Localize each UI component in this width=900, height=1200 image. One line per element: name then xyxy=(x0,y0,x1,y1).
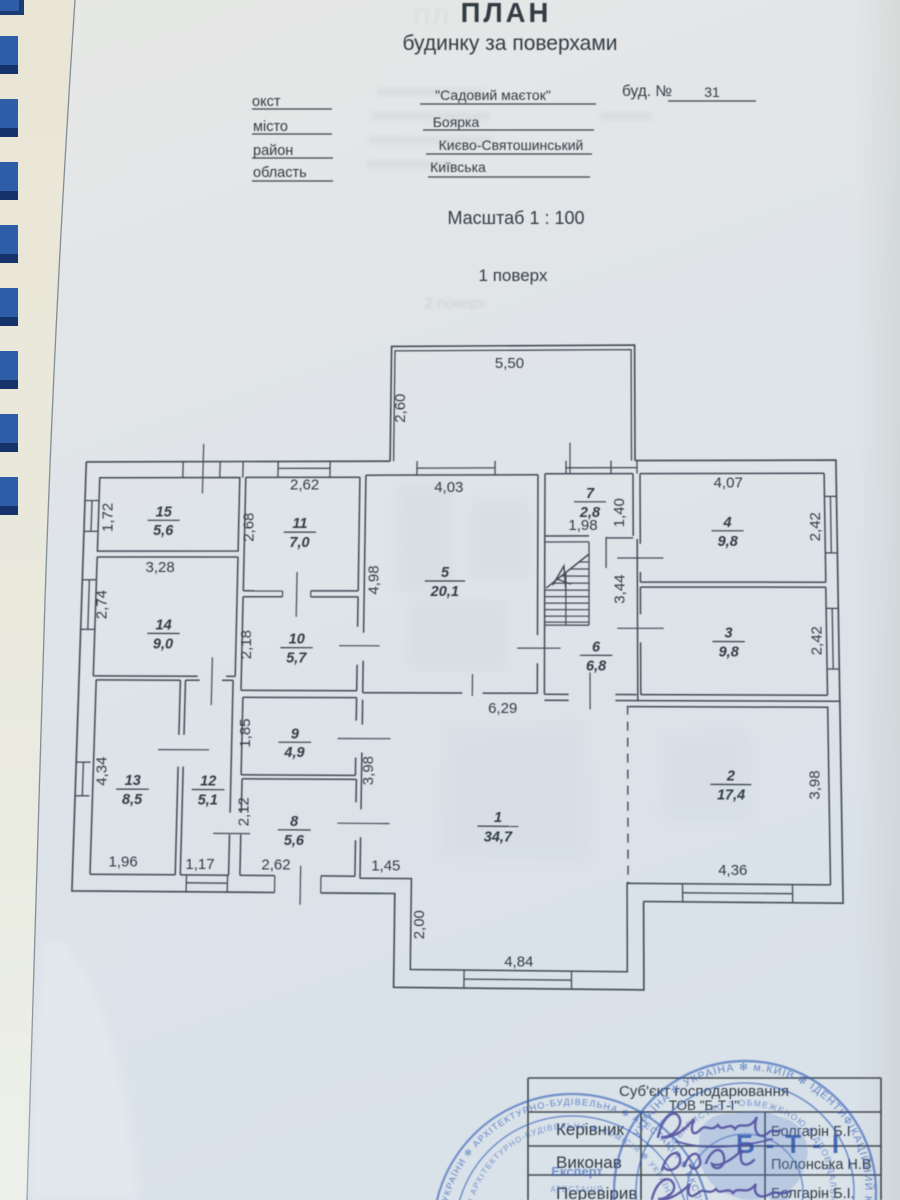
svg-text:8,5: 8,5 xyxy=(122,792,143,808)
svg-text:3,98: 3,98 xyxy=(807,770,824,799)
svg-text:2,62: 2,62 xyxy=(290,476,319,493)
svg-text:4,36: 4,36 xyxy=(718,862,747,879)
svg-text:3,44: 3,44 xyxy=(611,574,628,603)
svg-text:4,07: 4,07 xyxy=(714,475,743,492)
svg-text:4,9: 4,9 xyxy=(283,745,304,761)
svg-text:2,42: 2,42 xyxy=(807,512,824,541)
svg-text:7: 7 xyxy=(586,486,595,502)
svg-text:5,6: 5,6 xyxy=(284,833,305,849)
svg-text:13: 13 xyxy=(125,773,141,789)
svg-text:1,40: 1,40 xyxy=(611,498,628,527)
svg-text:3,28: 3,28 xyxy=(145,559,174,576)
svg-text:5: 5 xyxy=(441,565,450,581)
svg-text:9: 9 xyxy=(291,726,299,742)
svg-text:20,1: 20,1 xyxy=(430,584,459,600)
svg-text:4,84: 4,84 xyxy=(504,954,533,971)
svg-text:Експерт: Експерт xyxy=(551,1164,602,1179)
svg-text:Київська: Київська xyxy=(430,159,486,175)
svg-text:Києво-Святошинський: Києво-Святошинський xyxy=(439,137,584,153)
svg-text:6: 6 xyxy=(592,639,601,655)
svg-text:6,29: 6,29 xyxy=(488,700,517,717)
svg-text:АТЕСТАЦІЯ: АТЕСТАЦІЯ xyxy=(550,1185,603,1194)
svg-text:15: 15 xyxy=(156,504,173,520)
svg-text:2,00: 2,00 xyxy=(411,910,428,939)
svg-text:1,85: 1,85 xyxy=(237,718,254,747)
svg-text:1,72: 1,72 xyxy=(100,503,117,532)
svg-text:10: 10 xyxy=(289,632,305,648)
svg-text:1,96: 1,96 xyxy=(108,854,137,871)
svg-text:1: 1 xyxy=(494,810,502,826)
svg-text:область: область xyxy=(253,165,307,181)
svg-text:14: 14 xyxy=(156,618,172,634)
svg-text:1,45: 1,45 xyxy=(371,857,400,874)
svg-text:8: 8 xyxy=(290,814,299,830)
svg-text:3,98: 3,98 xyxy=(360,756,377,785)
svg-text:2,74: 2,74 xyxy=(94,590,111,619)
svg-text:2,68: 2,68 xyxy=(241,513,258,542)
svg-text:4: 4 xyxy=(722,515,731,531)
svg-text:окст: окст xyxy=(252,94,281,110)
svg-text:12: 12 xyxy=(200,774,216,790)
svg-text:1,17: 1,17 xyxy=(185,856,214,873)
svg-text:6,8: 6,8 xyxy=(586,658,607,674)
svg-text:2,18: 2,18 xyxy=(238,630,255,659)
svg-text:місто: місто xyxy=(253,119,288,135)
svg-text:9,0: 9,0 xyxy=(153,636,173,652)
svg-text:Масштаб 1 : 100: Масштаб 1 : 100 xyxy=(447,208,584,228)
svg-text:2,42: 2,42 xyxy=(809,626,826,655)
svg-text:17,4: 17,4 xyxy=(717,788,745,804)
svg-text:5,7: 5,7 xyxy=(286,651,307,667)
svg-text:7,0: 7,0 xyxy=(289,535,309,551)
svg-text:5,50: 5,50 xyxy=(495,355,524,372)
svg-text:буд. №: буд. № xyxy=(622,83,672,100)
svg-text:"Садовий маєток": "Садовий маєток" xyxy=(435,87,551,103)
svg-text:5,1: 5,1 xyxy=(198,793,218,809)
svg-text:4,03: 4,03 xyxy=(434,479,463,496)
svg-text:будинку за поверхами: будинку за поверхами xyxy=(402,32,617,55)
svg-text:ПЛАН: ПЛАН xyxy=(461,0,552,28)
svg-text:4,98: 4,98 xyxy=(366,565,383,594)
svg-text:31: 31 xyxy=(704,84,720,100)
svg-text:1 поверх: 1 поверх xyxy=(479,266,548,285)
svg-text:2,8: 2,8 xyxy=(579,505,601,521)
svg-text:9,8: 9,8 xyxy=(719,645,740,661)
svg-text:2 поверх: 2 поверх xyxy=(425,295,486,312)
svg-text:2,62: 2,62 xyxy=(261,857,290,874)
svg-text:2: 2 xyxy=(726,769,735,785)
svg-text:ПЛ: ПЛ xyxy=(413,4,451,31)
svg-text:4,34: 4,34 xyxy=(94,757,111,786)
svg-text:2,12: 2,12 xyxy=(236,797,253,826)
svg-text:9,8: 9,8 xyxy=(718,534,739,550)
svg-text:район: район xyxy=(253,143,293,159)
svg-text:2,60: 2,60 xyxy=(392,394,409,423)
svg-text:3: 3 xyxy=(725,626,733,642)
svg-text:Боярка: Боярка xyxy=(433,114,480,130)
svg-text:11: 11 xyxy=(292,516,307,532)
svg-text:5,6: 5,6 xyxy=(153,523,174,539)
svg-text:34,7: 34,7 xyxy=(484,829,513,845)
